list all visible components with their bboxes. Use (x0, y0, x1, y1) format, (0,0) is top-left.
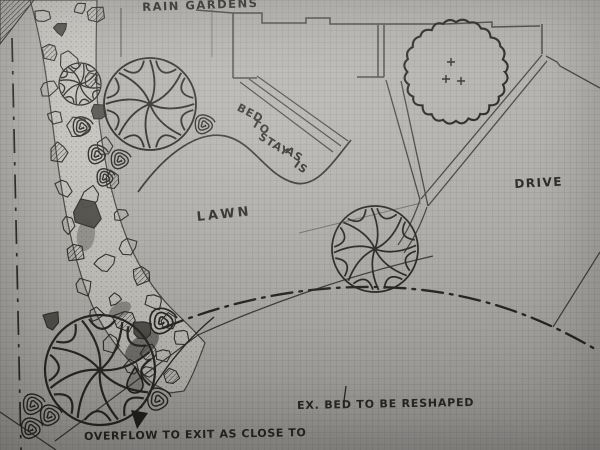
rock (42, 44, 57, 60)
shrub-spiral-icon (24, 394, 46, 415)
corner-hatch-wedge (0, 0, 34, 44)
drive-lower-edge (553, 252, 600, 327)
lawn-bed-curve (138, 135, 351, 192)
dashdot-bed-line (163, 287, 595, 349)
house-top-edge (196, 10, 540, 27)
rock (67, 244, 84, 260)
arrow-head-icon (131, 410, 148, 429)
plus-marks (442, 58, 465, 85)
rock (43, 312, 59, 330)
house-outline (121, 8, 542, 78)
landscape-plan-photo: RAIN GARDENS BED TO STAY AS IS LAWN DRIV… (0, 0, 600, 450)
tree-symbol (104, 58, 196, 150)
shrub-spiral-icon (195, 115, 215, 134)
right-walk (386, 80, 428, 206)
plan-sketch-svg (0, 0, 600, 450)
walkway-lines (240, 55, 600, 327)
plus-mark-icon (457, 77, 465, 85)
creek-stipple (30, 0, 205, 393)
rock (87, 7, 104, 22)
shrub-spiral-icon (111, 150, 131, 169)
plus-mark-icon (447, 58, 455, 66)
shrub-spiral-icon (22, 418, 44, 439)
house-right-wall (357, 25, 384, 77)
scalloped-shrub-outline (404, 20, 507, 124)
drive-label: DRIVE (514, 174, 563, 191)
dry-creek-bed (30, 0, 205, 393)
house-left-wall (233, 13, 257, 78)
drive-top-edge (546, 56, 600, 88)
property-line (12, 38, 21, 450)
plus-mark-icon (442, 75, 450, 83)
existing-shrub-mass (404, 20, 507, 124)
